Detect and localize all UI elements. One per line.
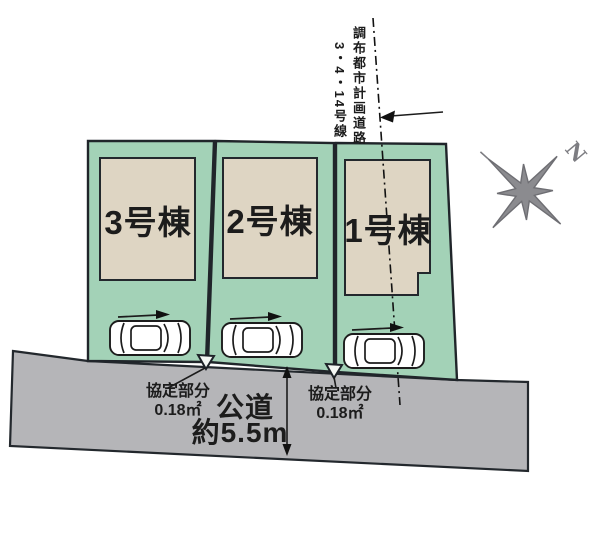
compass-rose-icon bbox=[448, 116, 592, 260]
agreement-left-title: 協定部分 bbox=[146, 382, 210, 401]
site-plan-canvas bbox=[0, 0, 600, 541]
agreement-right-area: 0.18㎡ bbox=[308, 404, 372, 423]
planned-road-pointer-line bbox=[391, 112, 443, 116]
road-width-label: 約5.5m bbox=[192, 411, 289, 451]
lot-3-label: 3号棟 bbox=[104, 196, 191, 244]
agreement-right-title: 協定部分 bbox=[308, 385, 372, 404]
planned-road-pointer-head bbox=[380, 111, 395, 123]
site-plan-diagram: 調布都市計画道路 3・4・14号線 3号棟 2号棟 1号棟 協定部分 0.18㎡… bbox=[0, 0, 600, 541]
lot-2-label: 2号棟 bbox=[226, 195, 313, 243]
lot-1-label: 1号棟 bbox=[344, 204, 431, 252]
agreement-right-label: 協定部分 0.18㎡ bbox=[308, 385, 372, 423]
planned-road-line-label: 3・4・14号線 bbox=[333, 42, 346, 139]
planned-road-name-label: 調布都市計画道路 bbox=[352, 26, 365, 146]
